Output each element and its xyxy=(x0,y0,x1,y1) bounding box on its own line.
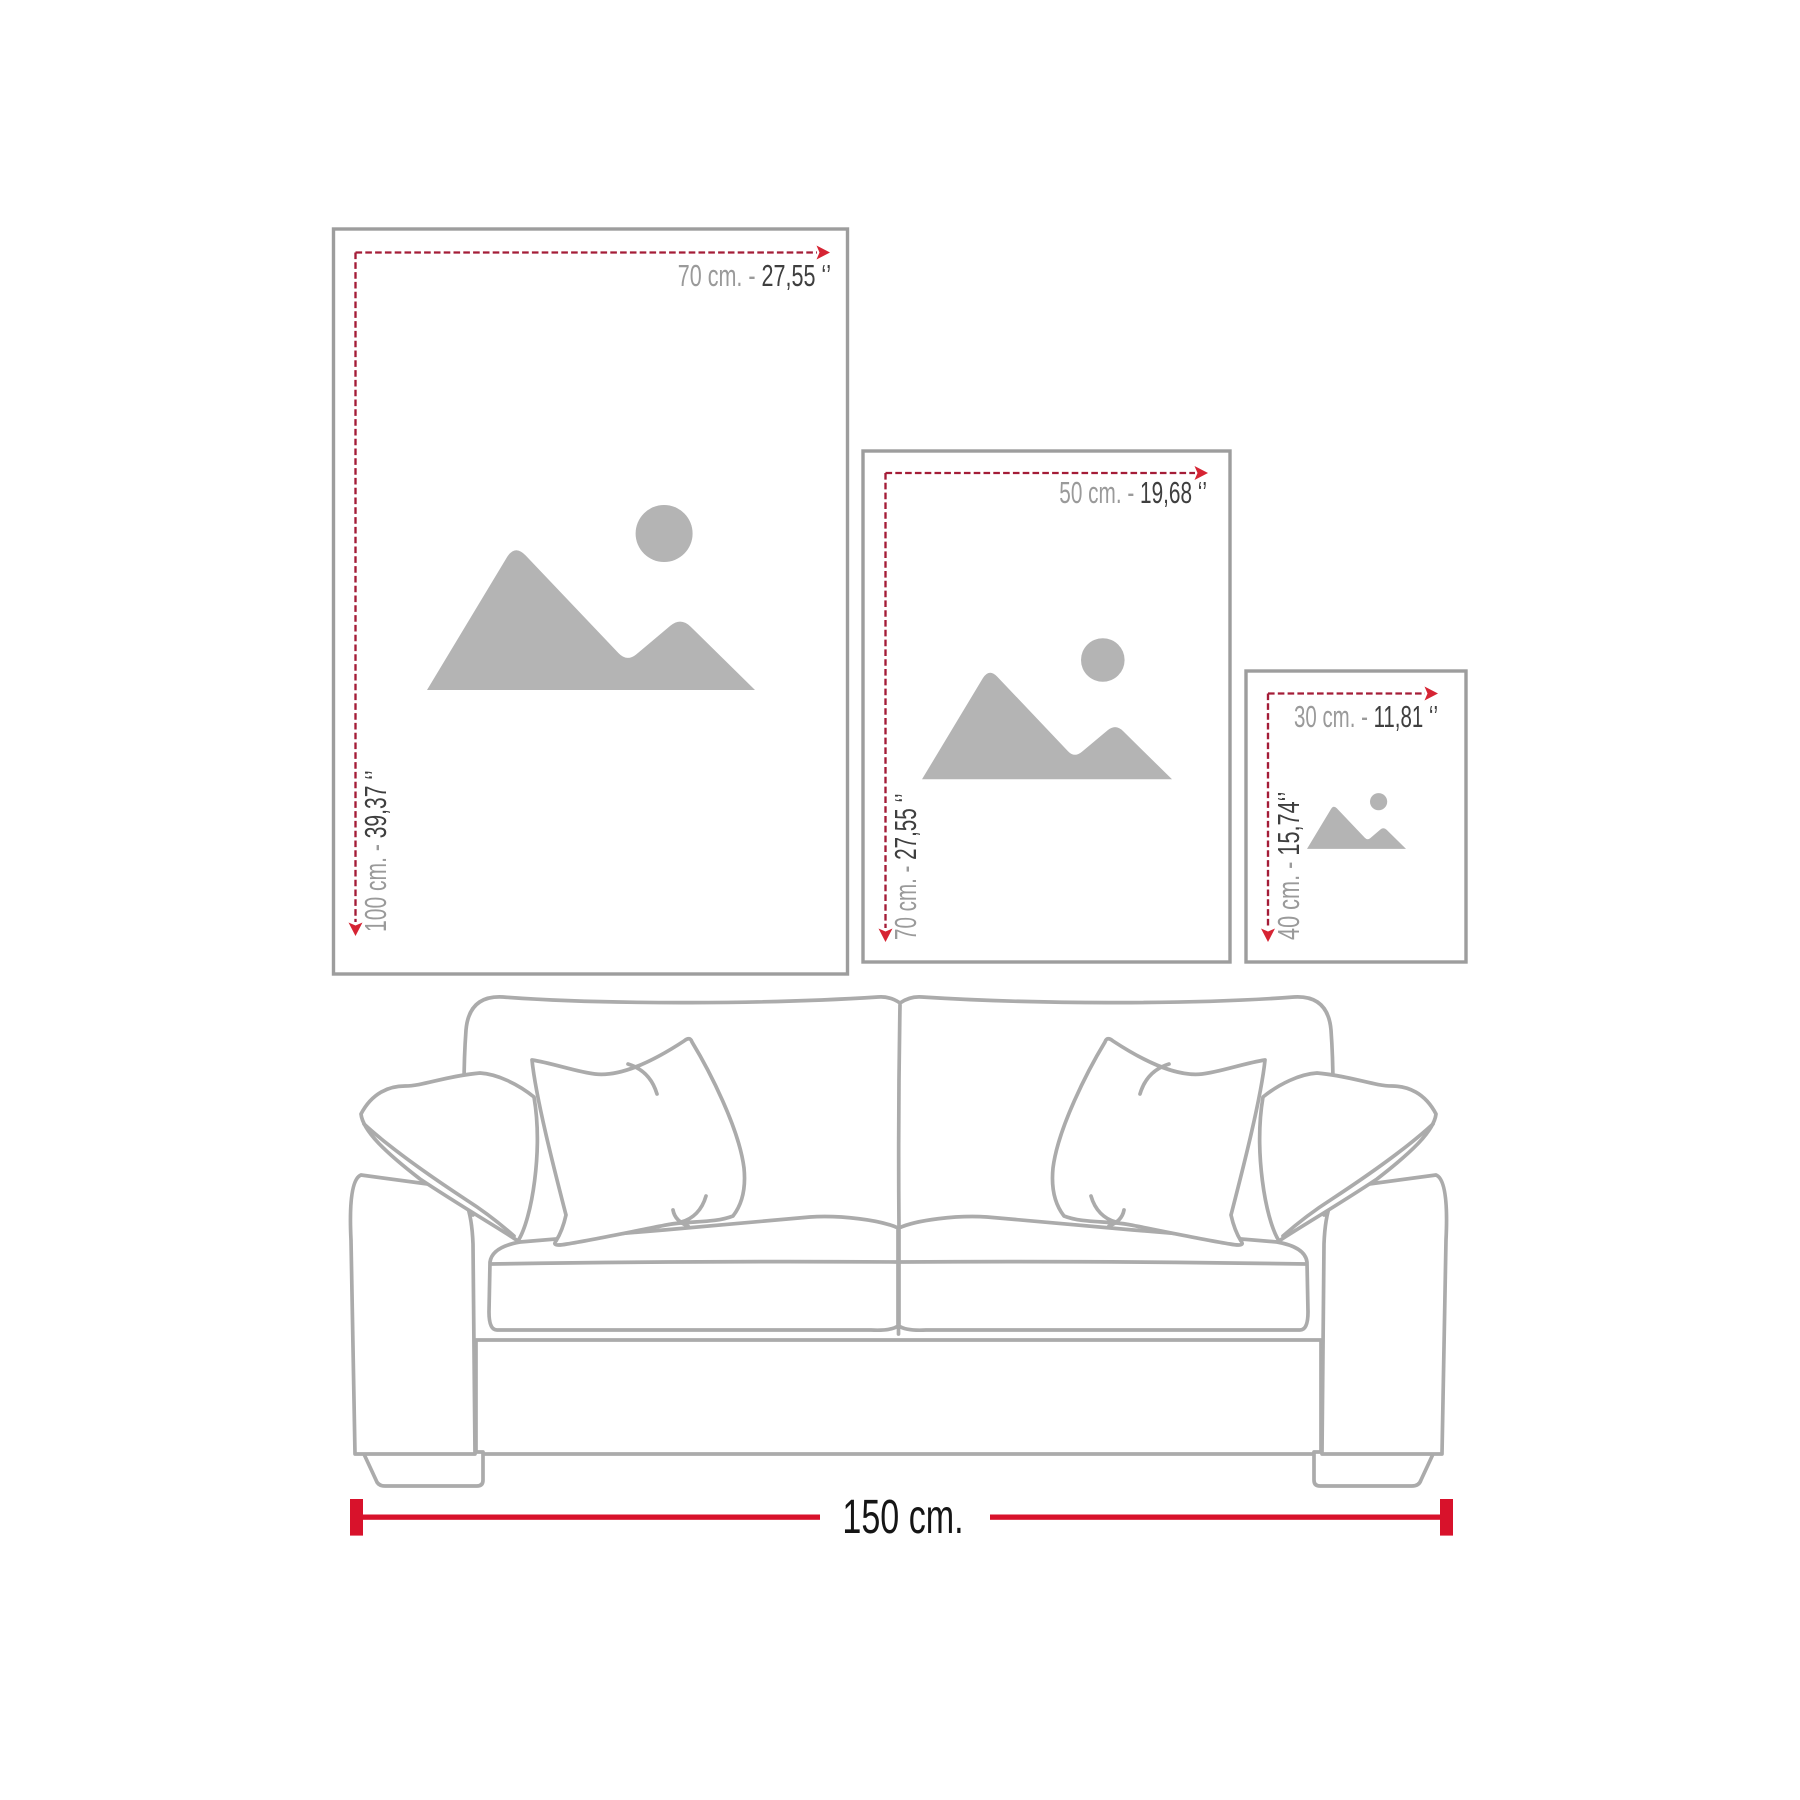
svg-text:50 cm. - 19,68 ‘’: 50 cm. - 19,68 ‘’ xyxy=(1059,475,1207,510)
svg-text:70 cm. - 27,55 ‘’: 70 cm. - 27,55 ‘’ xyxy=(888,793,923,940)
svg-text:30 cm. - 11,81 ‘’: 30 cm. - 11,81 ‘’ xyxy=(1294,699,1438,734)
svg-text:100 cm. - 39,37 ‘’: 100 cm. - 39,37 ‘’ xyxy=(358,770,393,932)
svg-text:40 cm. - 15,74‘’: 40 cm. - 15,74‘’ xyxy=(1271,792,1306,940)
svg-text:70 cm. - 27,55 ‘’: 70 cm. - 27,55 ‘’ xyxy=(678,258,831,293)
svg-text:150 cm.: 150 cm. xyxy=(842,1489,963,1543)
